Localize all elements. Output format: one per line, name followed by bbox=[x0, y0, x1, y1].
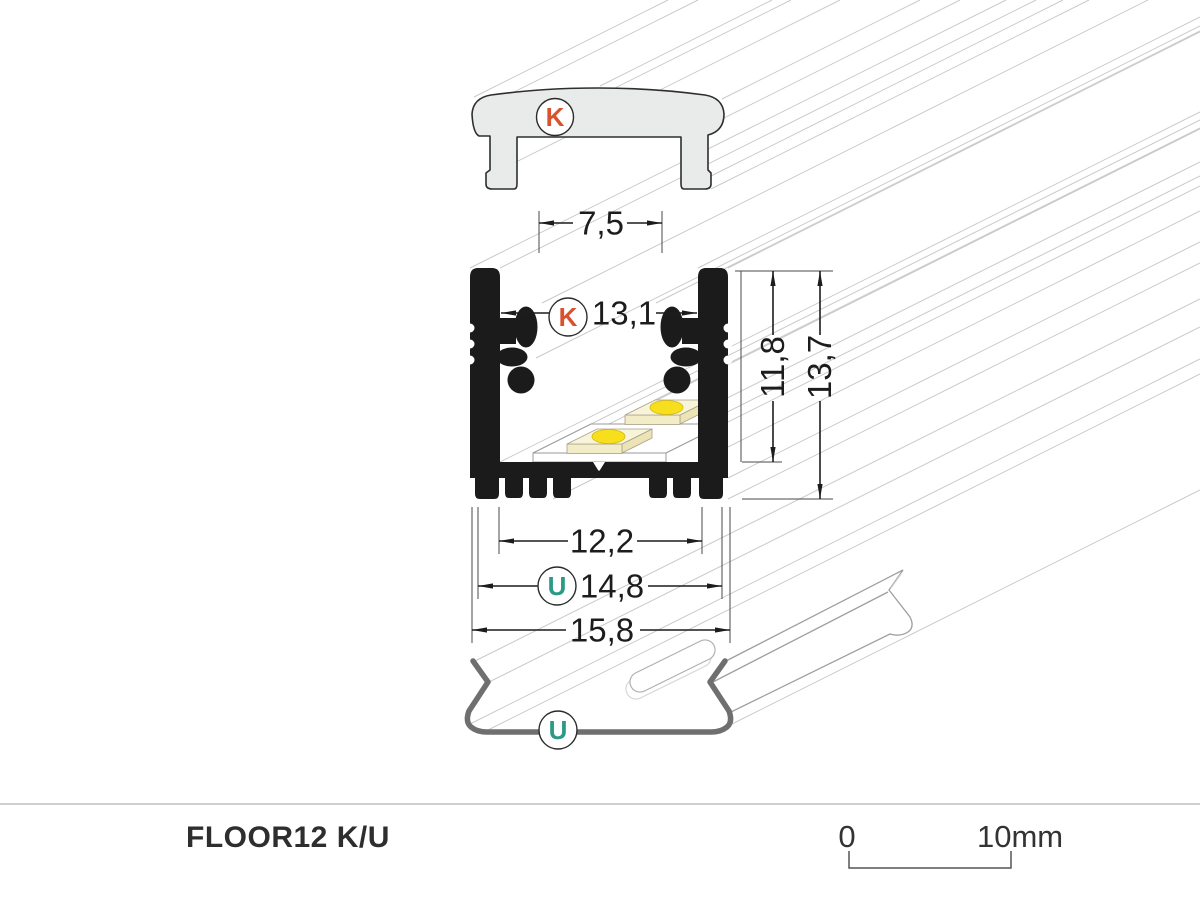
technical-drawing-canvas: 7,5 K 13,1 11,8 bbox=[0, 0, 1200, 900]
dim-text-opening-width: 13,1 bbox=[592, 295, 656, 332]
dim-text-total-width: 15,8 bbox=[570, 612, 634, 649]
dim-text-base-width: 12,2 bbox=[570, 523, 634, 560]
dim-heights: 11,8 13,7 bbox=[735, 271, 838, 499]
mounting-clip-cross-section bbox=[467, 661, 730, 732]
dim-text-clip-width: 14,8 bbox=[580, 568, 644, 605]
u-marker-letter-dimension: U bbox=[548, 571, 567, 601]
clip-slot-hole bbox=[630, 640, 715, 692]
dim-base-width: 12,2 bbox=[499, 507, 702, 560]
mounting-clip-3d-body bbox=[626, 570, 912, 713]
u-marker-letter-clip: U bbox=[549, 715, 568, 745]
dim-cover-width: 7,5 bbox=[539, 205, 662, 254]
dim-text-cover-width: 7,5 bbox=[578, 205, 624, 242]
profile-wall bbox=[466, 268, 538, 462]
k-marker-letter-profile: K bbox=[559, 302, 578, 332]
clip-marker: U bbox=[539, 711, 577, 749]
scale-bar: 0 10mm bbox=[838, 819, 1063, 868]
footer: FLOOR12 K/U 0 10mm bbox=[0, 804, 1200, 868]
scale-end-label: 10mm bbox=[977, 819, 1063, 854]
scale-start-label: 0 bbox=[838, 819, 855, 854]
dim-text-inner-height: 11,8 bbox=[754, 336, 791, 398]
led-emitter bbox=[650, 401, 683, 415]
cover-marker: K bbox=[537, 99, 574, 136]
led-chip-back bbox=[625, 400, 710, 425]
k-marker-letter-cover: K bbox=[546, 102, 565, 132]
led-emitter bbox=[592, 430, 625, 444]
profile-drawing-svg: 7,5 K 13,1 11,8 bbox=[0, 0, 1200, 900]
dim-text-total-height: 13,7 bbox=[801, 335, 838, 399]
product-title: FLOOR12 K/U bbox=[186, 821, 390, 854]
cover-profile-cross-section bbox=[472, 88, 724, 189]
